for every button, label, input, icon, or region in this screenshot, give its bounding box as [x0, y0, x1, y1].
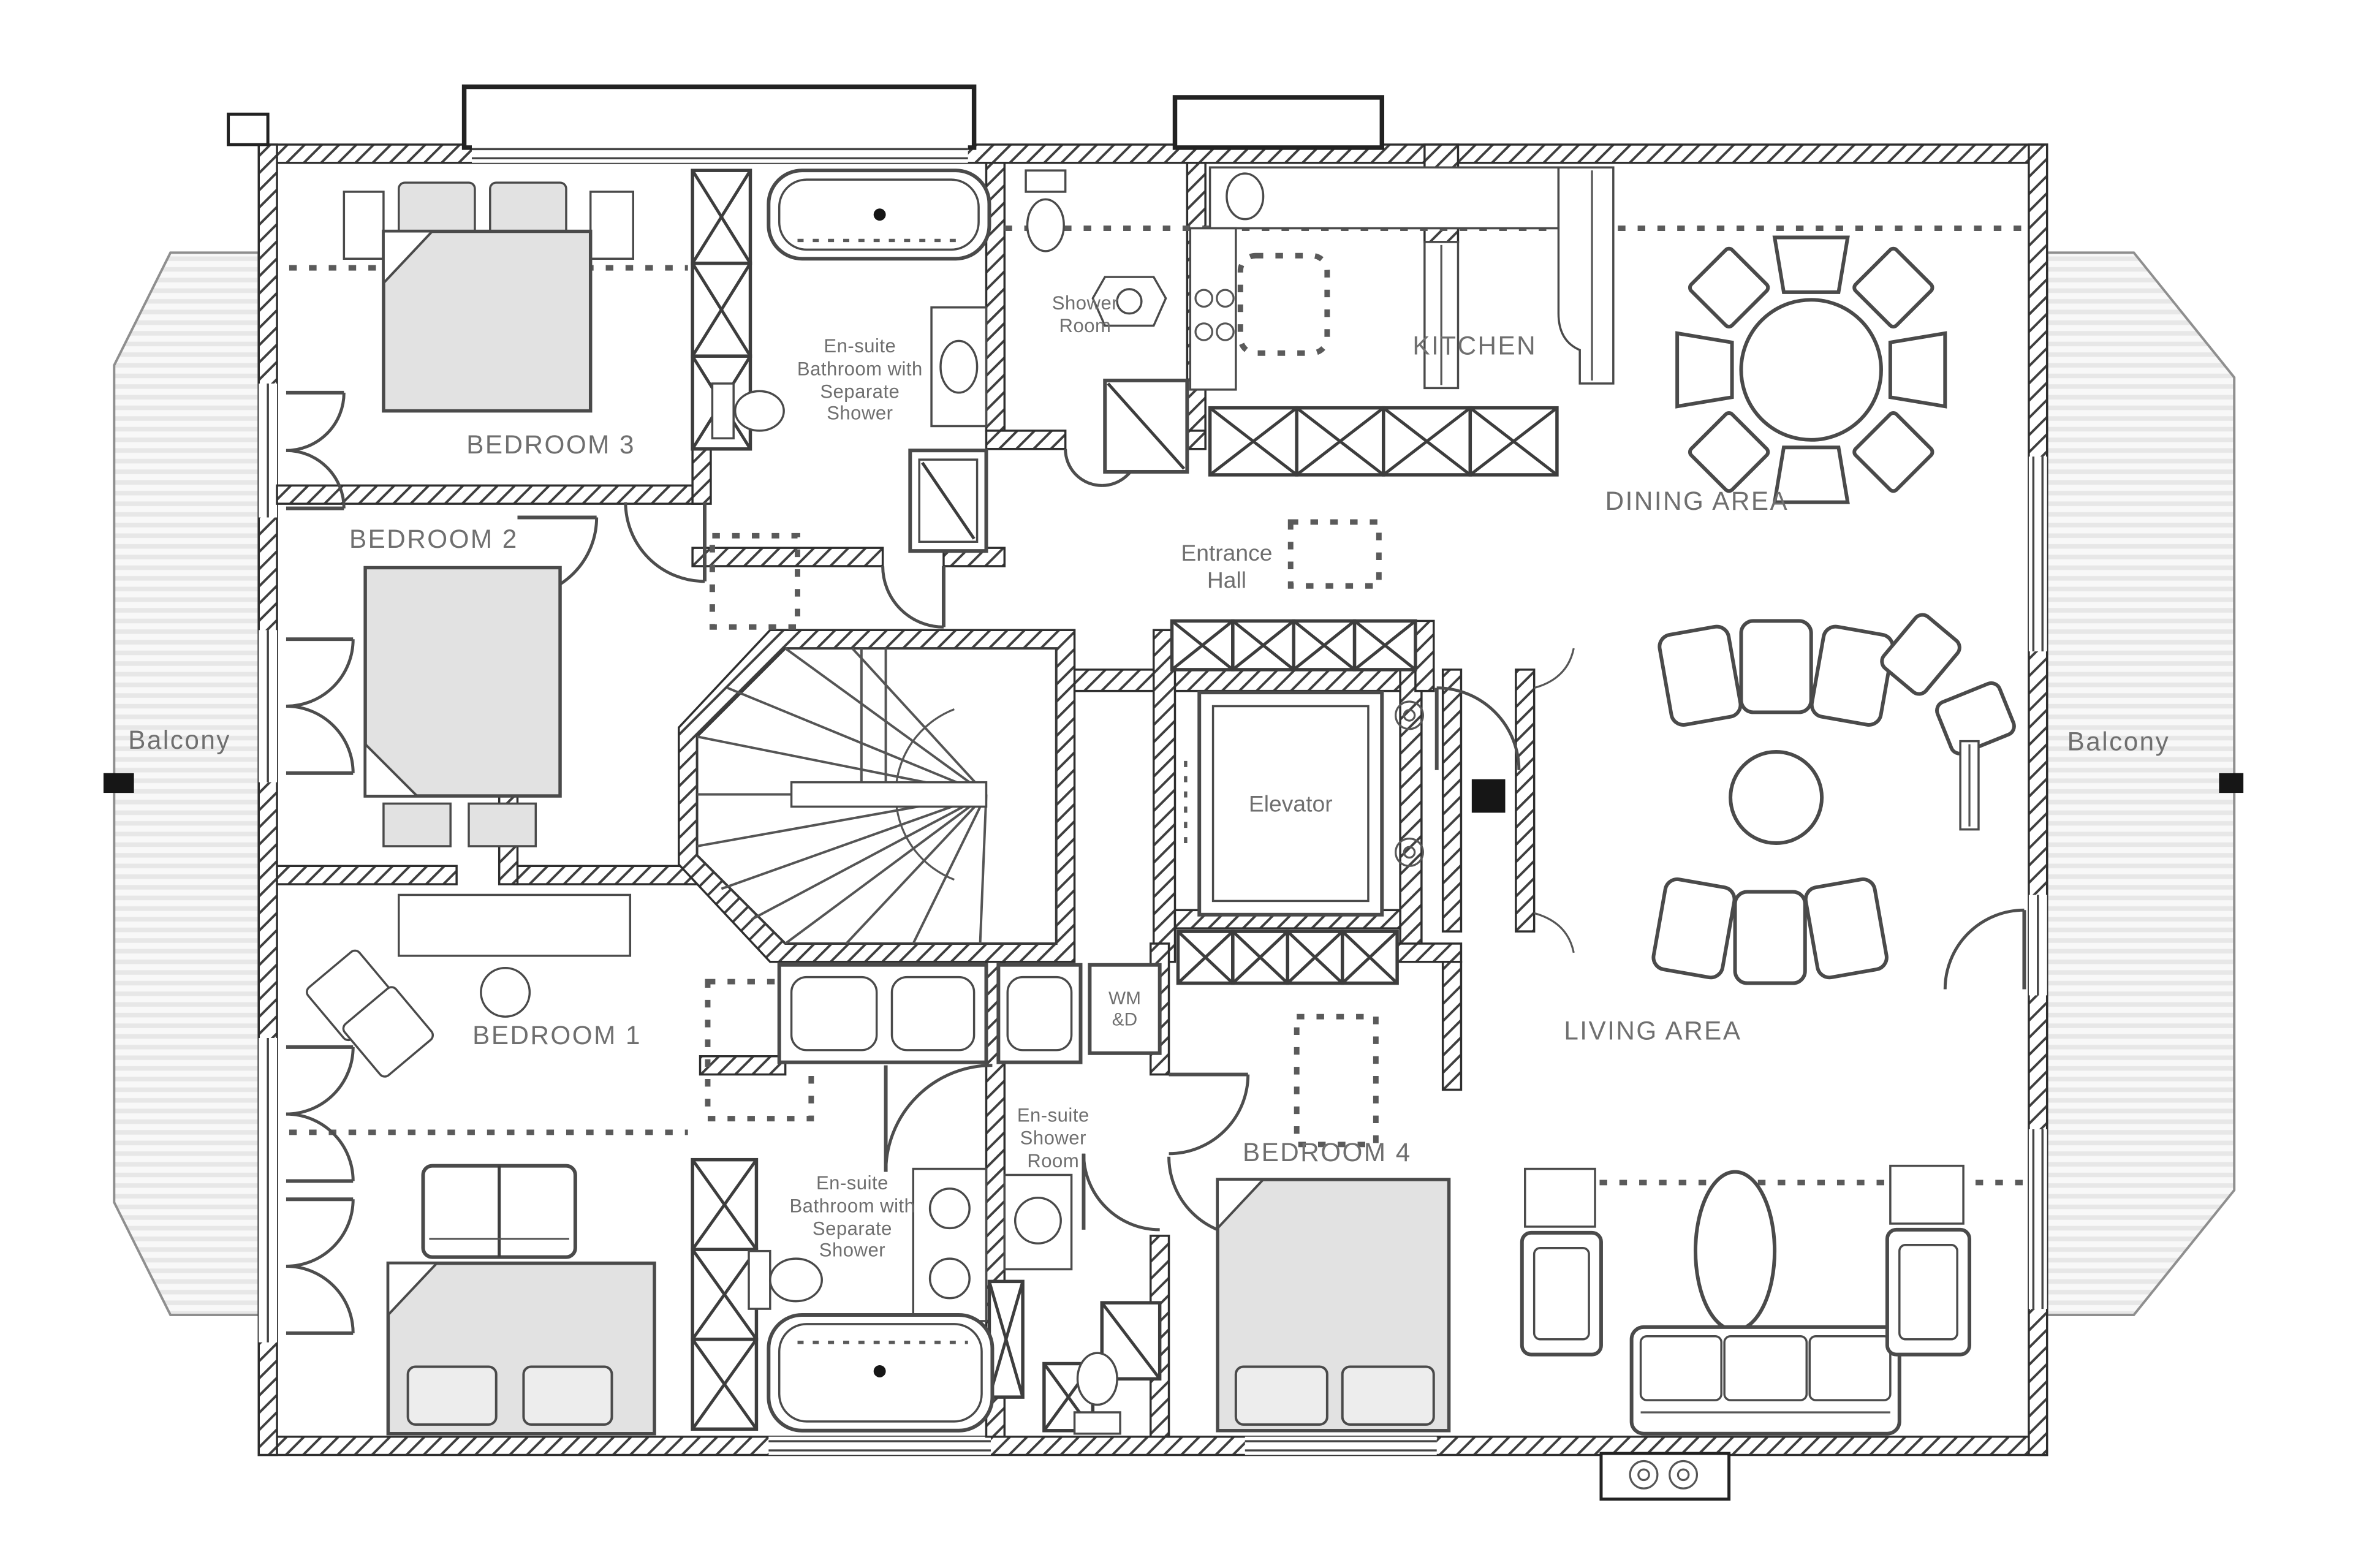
shower-cubicle [1105, 381, 1187, 472]
nightstand [591, 192, 634, 259]
label-ensuite-bathroom-top: En-suite Bathroom with Separate Shower [786, 336, 934, 426]
utility-fixtures [779, 965, 1160, 1062]
bathtub [768, 170, 989, 259]
bench [469, 803, 536, 846]
label-elevator: Elevator [1249, 792, 1333, 819]
bottom-utility-protrusion [1601, 1453, 1729, 1499]
hall-closet-row [1172, 621, 1415, 669]
dining-chair [1688, 247, 1770, 328]
dining-chair [1852, 247, 1934, 328]
label-ensuite-bathroom-bottom: En-suite Bathroom with Separate Shower [778, 1173, 926, 1263]
pillow [399, 183, 475, 237]
pillow [408, 1366, 496, 1424]
curved-sofa-lower [1651, 877, 1889, 983]
kitchen-cabinet-row [1210, 408, 1557, 475]
pillow [490, 183, 566, 237]
cooktop [1190, 229, 1236, 390]
dining-chair [1775, 237, 1847, 292]
label-bedroom4: BEDROOM 4 [1243, 1138, 1412, 1169]
bathtub [768, 1315, 992, 1431]
armchair-left [1522, 1233, 1601, 1355]
door-balcony-right [1945, 910, 2024, 989]
armchair [1878, 611, 1963, 697]
floor-plan-drawing [0, 0, 2353, 1567]
label-bedroom3: BEDROOM 3 [466, 431, 635, 461]
shower-cubicle [910, 450, 986, 551]
window-bottom-left [768, 1437, 991, 1455]
label-balcony-left: Balcony [128, 726, 231, 757]
bedroom2-furniture [365, 567, 560, 846]
dining-table [1741, 300, 1881, 440]
balcony-door-bedroom2 [286, 639, 353, 773]
label-kitchen: KITCHEN [1412, 331, 1537, 362]
desk [399, 895, 631, 955]
label-living-area: LIVING AREA [1564, 1017, 1741, 1047]
pillow [1236, 1366, 1327, 1424]
label-bedroom1: BEDROOM 1 [472, 1021, 642, 1052]
label-bedroom2: BEDROOM 2 [349, 525, 518, 556]
label-balcony-right: Balcony [2067, 727, 2170, 758]
balcony-post [2219, 773, 2243, 793]
label-ensuite-shower-room: En-suite Shower Room [1006, 1105, 1101, 1172]
kitchen-peninsula [1558, 167, 1613, 384]
side-table [1525, 1169, 1595, 1227]
toilet [1075, 1353, 1121, 1434]
kitchen-fixtures [1190, 167, 1613, 390]
window-bottom-bedroom4 [1245, 1437, 1437, 1455]
label-entrance-hall: Entrance Hall [1163, 541, 1291, 595]
door-ensuite-top [883, 566, 944, 627]
window-right-upper [2029, 456, 2047, 651]
label-washer-dryer: WM &D [1104, 988, 1146, 1031]
bedroom1-furniture [305, 895, 654, 1433]
label-dining-area: DINING AREA [1605, 487, 1789, 518]
balcony-right-deck [2047, 252, 2243, 1315]
bed [384, 232, 591, 411]
door-bathroom-bottom [886, 1066, 993, 1172]
lower-closet-row [1178, 931, 1397, 983]
side-table [1890, 1166, 1963, 1224]
balcony-left-deck [104, 252, 259, 1315]
bench [384, 803, 450, 846]
bed [365, 567, 560, 796]
window-right-lower [2029, 1129, 2047, 1309]
tall-cabinet [1425, 242, 1458, 388]
door-bedroom3 [626, 502, 705, 581]
floor-plan-page: Balcony Balcony BEDROOM 3 BEDROOM 2 BEDR… [0, 0, 2353, 1567]
armchair-right [1887, 1230, 1969, 1355]
loveseat [423, 1166, 575, 1257]
dining-set [1677, 237, 1945, 502]
curved-sofa-upper [1658, 621, 1895, 727]
pillow [523, 1366, 612, 1424]
kitchen-island [1240, 256, 1327, 353]
washbasin [931, 308, 986, 426]
toilet [1026, 170, 1066, 251]
kitchen-sink [1227, 173, 1264, 219]
nightstand [344, 192, 384, 259]
wardrobe-bathroom-bottom [692, 1160, 756, 1430]
vanity-double [779, 965, 987, 1062]
label-shower-room: Shower Room [1039, 293, 1131, 338]
dining-chair [1688, 411, 1770, 493]
spiral-staircase [679, 630, 1075, 961]
sofa-three-seat [1632, 1327, 1900, 1434]
top-protrusions [229, 87, 1382, 148]
tv-unit [1960, 741, 1979, 830]
stair-handrail [792, 782, 987, 807]
washbasin [1004, 1175, 1071, 1269]
balcony-post [104, 773, 134, 793]
oval-coffee-table [1696, 1172, 1775, 1330]
bedroom4-furniture [1218, 1180, 1449, 1431]
dining-chair [1677, 333, 1732, 406]
dining-chair [1890, 333, 1945, 406]
pillow [1343, 1366, 1434, 1424]
vanity-single [998, 965, 1080, 1062]
dining-chair [1852, 411, 1934, 493]
window-top [472, 145, 968, 163]
sofa-group-bottom [1522, 1166, 1969, 1434]
bedroom3-furniture [344, 183, 633, 411]
stool [481, 968, 529, 1017]
balcony-doors-bedroom1 [286, 1047, 353, 1333]
shower-enclosure-bottom [989, 1281, 1159, 1430]
round-coffee-table [1730, 752, 1822, 843]
